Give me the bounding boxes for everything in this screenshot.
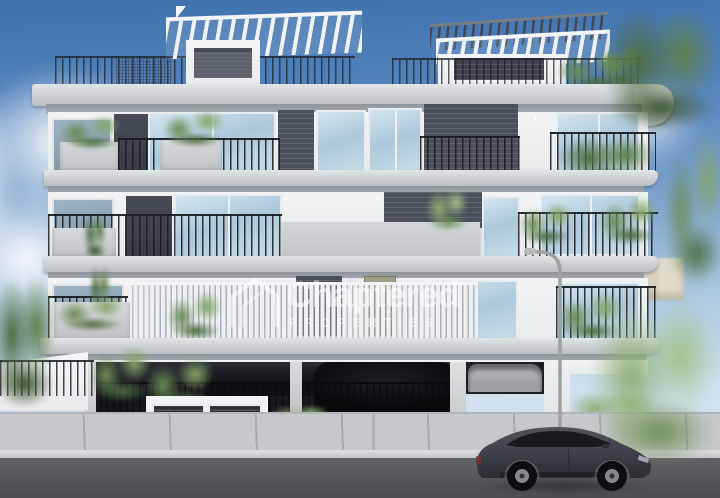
roof-terrace-mesh-screen xyxy=(116,58,172,86)
floor2-plants-right-1 xyxy=(514,196,578,248)
car-rear-hub xyxy=(520,474,525,479)
watermark-brand: Chaptered xyxy=(286,274,460,316)
floor3-plant-1 xyxy=(54,110,128,152)
car-taillight xyxy=(476,456,481,464)
floor3-glass-2 xyxy=(316,110,366,174)
tree-left-edge xyxy=(0,254,64,416)
watermark: Chaptered PROPERTIES xyxy=(226,272,496,336)
floor1-plant-center xyxy=(162,284,228,344)
house-outline-icon xyxy=(226,274,284,332)
roof-room-left-blind xyxy=(194,48,252,78)
car-front-hub xyxy=(610,474,615,479)
floor2-banana-plant xyxy=(420,182,474,234)
car-mirror xyxy=(602,444,609,448)
floor2-plants-right-2 xyxy=(594,190,664,248)
floor2-vine xyxy=(80,206,110,262)
floor3-brick-panel-1 xyxy=(278,110,314,174)
architectural-render-scene: Chaptered PROPERTIES xyxy=(0,0,720,498)
floor3-plant-2 xyxy=(156,104,232,150)
street-lamp xyxy=(518,244,582,440)
roof-slab xyxy=(32,84,632,106)
floor3-glass-3 xyxy=(368,108,422,174)
tree-right-upper xyxy=(660,110,720,294)
watermark-subtitle: PROPERTIES xyxy=(289,316,440,330)
lamp-pole xyxy=(532,252,560,440)
lamp-head xyxy=(524,248,536,255)
sportback-car xyxy=(472,416,656,496)
floor2-slab xyxy=(44,170,658,186)
